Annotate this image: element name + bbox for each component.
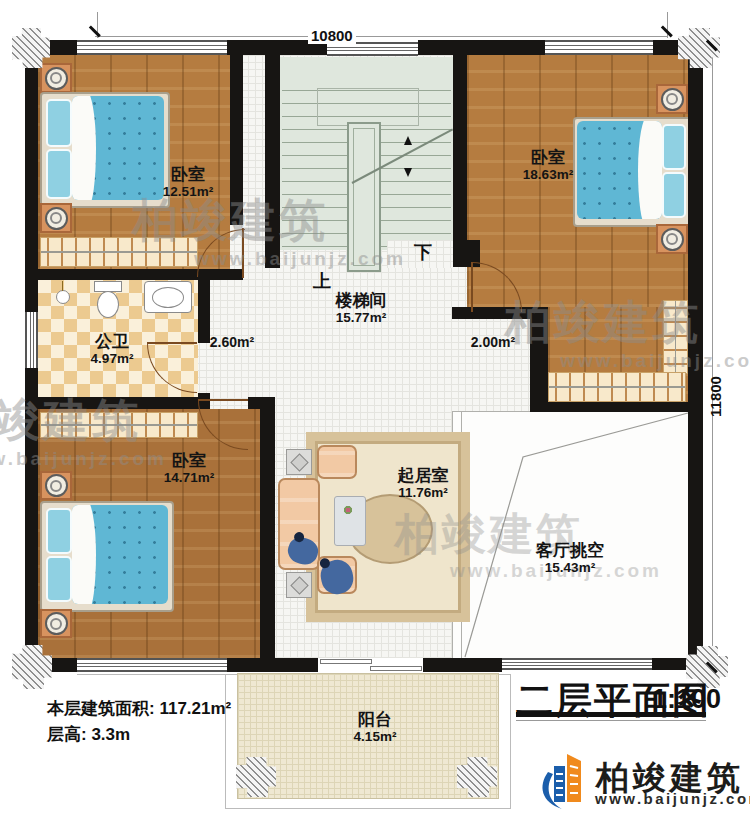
floor-area-label: 本层建筑面积:	[47, 699, 155, 718]
dimension-line-right	[712, 44, 713, 672]
hall-area-left: 2.60m²	[210, 334, 254, 350]
room-name: 卧室	[163, 166, 213, 184]
room-area: 18.63m²	[523, 167, 573, 182]
floor-height-line: 层高: 3.3m	[47, 723, 130, 746]
wall	[423, 658, 502, 672]
room-name: 阳台	[354, 711, 397, 729]
room-label-stairwell: 楼梯间 15.77m²	[336, 292, 387, 325]
watermark-text: 柏竣建筑	[132, 194, 328, 246]
watermark: 柏竣建筑 www.baijunjz.com	[395, 505, 662, 582]
floor-plan: 10800 11800 卧室 12.51m² 卧室 18.63m² 公卫 4.9…	[0, 0, 750, 823]
watermark-url: www.baijunjz.com	[194, 248, 406, 270]
window	[77, 658, 227, 672]
room-area: 12.51m²	[163, 184, 213, 199]
watermark-text: 柏竣建筑	[0, 394, 141, 446]
wall	[418, 40, 545, 55]
window	[77, 40, 227, 55]
balcony-sliding-door	[370, 666, 422, 671]
door-leaf	[147, 342, 197, 344]
dimension-right-value: 11800	[707, 364, 724, 430]
stair-up-label: 上	[313, 269, 331, 293]
room-label-living: 起居室 11.76m²	[398, 467, 449, 500]
brand-website: www.baijunjz.com	[595, 790, 750, 807]
dimension-top-value: 10800	[308, 27, 356, 44]
room-area: 11.76m²	[398, 485, 449, 500]
wall	[248, 397, 275, 409]
floor-area-value: 117.21m²	[159, 699, 231, 718]
stair-down-label: 下	[414, 240, 432, 264]
floor-height-value: 3.3m	[91, 725, 130, 744]
floor-height-label: 层高:	[47, 725, 87, 744]
room-area: 4.97m²	[91, 351, 134, 366]
brand-logo-icon	[536, 752, 590, 810]
watermark: 柏竣建筑 www.baijunjz.com	[0, 390, 167, 470]
room-label-void: 客厅挑空 15.43m²	[536, 542, 604, 575]
hall-area-right: 2.00m²	[471, 334, 515, 350]
room-name: 公卫	[91, 333, 134, 351]
window	[502, 658, 652, 670]
room-name: 客厅挑空	[536, 542, 604, 560]
room-name: 楼梯间	[336, 292, 387, 310]
wall	[453, 55, 467, 267]
room-label-balcony: 阳台 4.15m²	[354, 711, 397, 744]
room-area: 15.43m²	[536, 560, 604, 575]
window	[25, 312, 38, 368]
watermark-url: www.baijunjz.com	[0, 448, 167, 470]
door-leaf	[198, 399, 248, 401]
watermark: 柏竣建筑 www.baijunjz.com	[505, 292, 750, 372]
window	[327, 42, 418, 56]
wall	[227, 658, 318, 672]
door-leaf	[471, 262, 473, 312]
wall	[25, 40, 38, 312]
room-name: 卧室	[523, 149, 573, 167]
room-area: 14.71m²	[164, 470, 214, 485]
watermark-text: 柏竣建筑	[505, 296, 701, 348]
wall	[540, 402, 688, 412]
room-name: 卧室	[164, 452, 214, 470]
room-label-bathroom: 公卫 4.97m²	[91, 333, 134, 366]
room-label-bedroom-tl: 卧室 12.51m²	[163, 166, 213, 199]
room-name: 起居室	[398, 467, 449, 485]
room-area: 15.77m²	[336, 310, 387, 325]
wall	[260, 409, 275, 658]
room-area: 4.15m²	[354, 729, 397, 744]
dimension-line-top	[95, 36, 668, 37]
floor-area-line: 本层建筑面积: 117.21m²	[47, 697, 231, 720]
balcony-sliding-door	[320, 659, 372, 664]
drawing-scale: 1:100	[652, 684, 721, 715]
watermark: 柏竣建筑 www.baijunjz.com	[132, 190, 406, 270]
room-label-bedroom-bl: 卧室 14.71m²	[164, 452, 214, 485]
window	[545, 40, 653, 55]
room-label-bedroom-tr: 卧室 18.63m²	[523, 149, 573, 182]
title-underline-thick	[516, 712, 706, 717]
title-underline-thin	[516, 720, 706, 721]
wall	[198, 280, 210, 343]
